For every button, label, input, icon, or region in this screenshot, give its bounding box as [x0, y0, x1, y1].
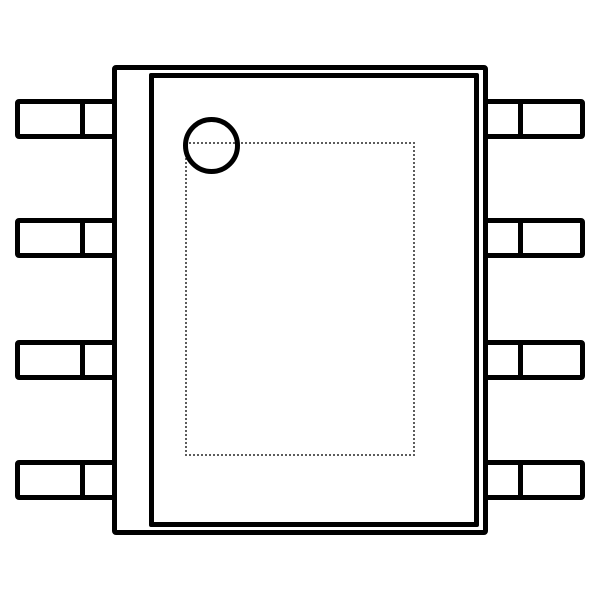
pin-left-2 — [15, 218, 117, 258]
pin-right-1 — [483, 99, 585, 139]
pin-left-3-shoulder-line — [80, 345, 85, 375]
exposed-pad-dotted-outline — [185, 142, 415, 456]
pin-left-3 — [15, 340, 117, 380]
pin-right-3 — [483, 340, 585, 380]
pin-right-4-shoulder-line — [518, 465, 523, 495]
pin-right-4 — [483, 460, 585, 500]
ic-package-diagram — [0, 0, 600, 600]
pin-left-1-shoulder-line — [80, 104, 85, 134]
pin-left-4 — [15, 460, 117, 500]
pin-right-1-shoulder-line — [518, 104, 523, 134]
pin-left-1 — [15, 99, 117, 139]
pin-right-2 — [483, 218, 585, 258]
pin1-indicator-circle — [183, 117, 240, 174]
pin-left-4-shoulder-line — [80, 465, 85, 495]
pin-right-3-shoulder-line — [518, 345, 523, 375]
pin-right-2-shoulder-line — [518, 223, 523, 253]
pin-left-2-shoulder-line — [80, 223, 85, 253]
